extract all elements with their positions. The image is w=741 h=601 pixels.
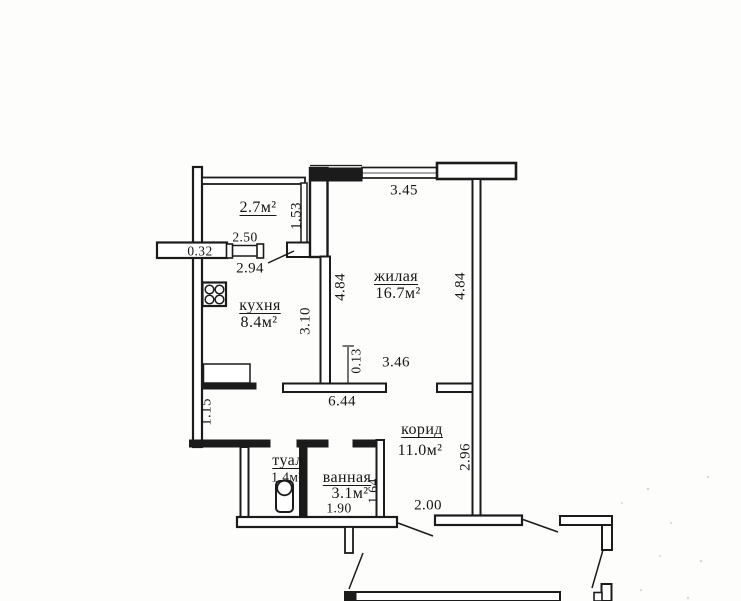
dim-wall-offset: 0.13	[349, 348, 363, 373]
wall-corridor-stub	[437, 384, 473, 393]
door-swing-hall-1	[523, 520, 558, 533]
stove-icon	[203, 283, 227, 307]
dim-living-lower-width: 3.46	[382, 356, 410, 371]
wall-right-piece-h	[560, 516, 612, 525]
room-label-corridor: корид	[401, 422, 443, 438]
dim-kitchen-height: 3.10	[299, 307, 314, 335]
wall-bottom-main	[237, 517, 397, 527]
room-area-living: 16.7м²	[375, 286, 420, 302]
floor-plan-page: 2.7м² кухня 8.4м² жилая 16.7м² туал 1.4м…	[0, 0, 741, 601]
room-area-kitchen: 8.4м²	[241, 315, 278, 331]
wall-entry-stub	[345, 527, 353, 553]
wall-right	[473, 179, 481, 517]
door-swing-entry	[349, 553, 363, 589]
wall-toilet-left	[241, 447, 249, 517]
dim-kitchen-lower: 1.15	[200, 398, 215, 426]
dim-balcony-window: 2.50	[232, 230, 257, 244]
wall-step-notch	[287, 243, 310, 258]
room-label-balcony-area: 2.7м²	[240, 200, 277, 216]
wall-kitchen-living	[321, 257, 331, 385]
dim-balcony-depth: 1.53	[290, 202, 305, 230]
wall-top-pier-right	[437, 163, 516, 179]
wall-bottom-long-end	[345, 592, 356, 601]
door-swings	[268, 251, 603, 589]
room-area-corridor: 11.0м²	[398, 443, 443, 459]
room-area-toilet: 1.4м²	[271, 470, 302, 484]
balcony-window-cap-left	[227, 244, 233, 258]
door-swing-corridor	[398, 523, 433, 536]
balcony-window-cap-right	[257, 244, 264, 258]
dim-corridor-height: 2.96	[459, 443, 474, 471]
wall-bath-top-1	[297, 440, 328, 447]
walls	[157, 163, 612, 601]
wall-bottom-2	[435, 516, 522, 526]
dim-top-window: 3.45	[390, 184, 418, 199]
dim-bathroom-width: 1.90	[326, 501, 351, 515]
room-label-living: жилая	[374, 269, 418, 285]
wall-br-stub-foot	[594, 593, 602, 601]
kitchen-counter	[204, 364, 251, 383]
room-label-toilet: туал	[272, 453, 303, 469]
dim-bathroom-depth: 1.64	[366, 478, 380, 503]
door-swing-hall-2	[592, 550, 603, 588]
dim-apartment-width: 6.44	[328, 395, 356, 410]
toilet-icon	[276, 481, 293, 512]
wall-bottom-long	[345, 592, 560, 601]
dim-living-height-right: 4.84	[454, 272, 469, 300]
dim-kitchen-width: 2.94	[236, 262, 264, 277]
wall-right-piece-v	[602, 525, 612, 550]
floor-plan-drawing	[0, 0, 741, 601]
wall-lower-row	[283, 384, 386, 393]
dim-living-height-left: 4.84	[334, 273, 349, 301]
wall-br-stub	[602, 584, 612, 601]
room-label-bathroom: ванная	[323, 470, 371, 486]
wall-balcony-top	[202, 178, 305, 185]
room-label-kitchen: кухня	[239, 298, 280, 314]
dim-exterior-wall: 0.32	[187, 244, 212, 258]
wall-hall-bottom	[190, 440, 271, 447]
dim-entry-opening: 2.00	[414, 499, 442, 514]
scan-noise	[621, 476, 709, 599]
wall-top-solid	[310, 168, 362, 181]
kitchen-counter-bar	[203, 383, 256, 389]
